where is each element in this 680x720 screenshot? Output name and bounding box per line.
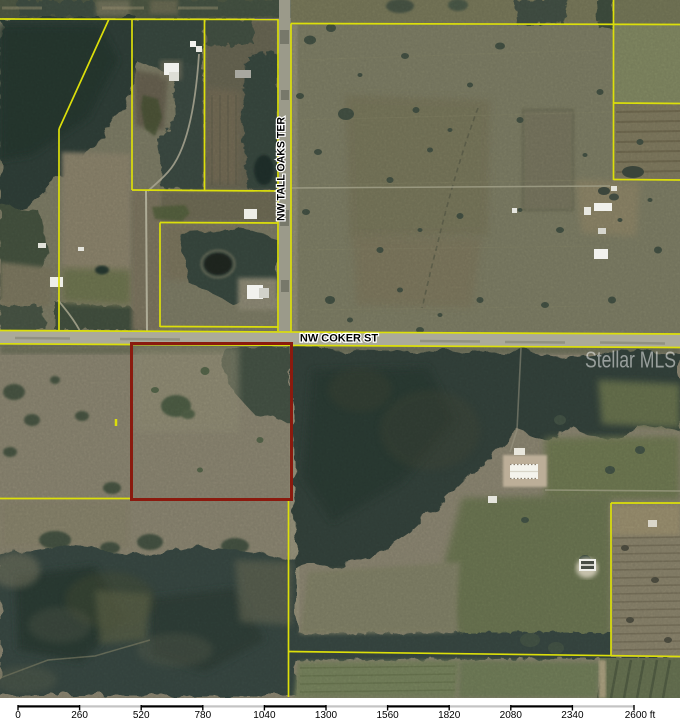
svg-text:260: 260 bbox=[71, 710, 88, 720]
svg-text:2600 ft: 2600 ft bbox=[625, 710, 656, 720]
svg-text:1300: 1300 bbox=[315, 710, 338, 720]
svg-text:Stellar MLS: Stellar MLS bbox=[585, 347, 676, 373]
svg-text:780: 780 bbox=[194, 710, 211, 720]
svg-text:NW COKER ST: NW COKER ST bbox=[300, 333, 379, 345]
svg-text:2340: 2340 bbox=[561, 710, 584, 720]
svg-text:NW TALL OAKS TER: NW TALL OAKS TER bbox=[276, 117, 288, 221]
svg-text:1820: 1820 bbox=[438, 710, 461, 720]
svg-text:1040: 1040 bbox=[253, 710, 276, 720]
svg-text:520: 520 bbox=[133, 710, 150, 720]
svg-text:2080: 2080 bbox=[500, 710, 523, 720]
svg-text:0: 0 bbox=[15, 710, 21, 720]
svg-text:1560: 1560 bbox=[376, 710, 399, 720]
